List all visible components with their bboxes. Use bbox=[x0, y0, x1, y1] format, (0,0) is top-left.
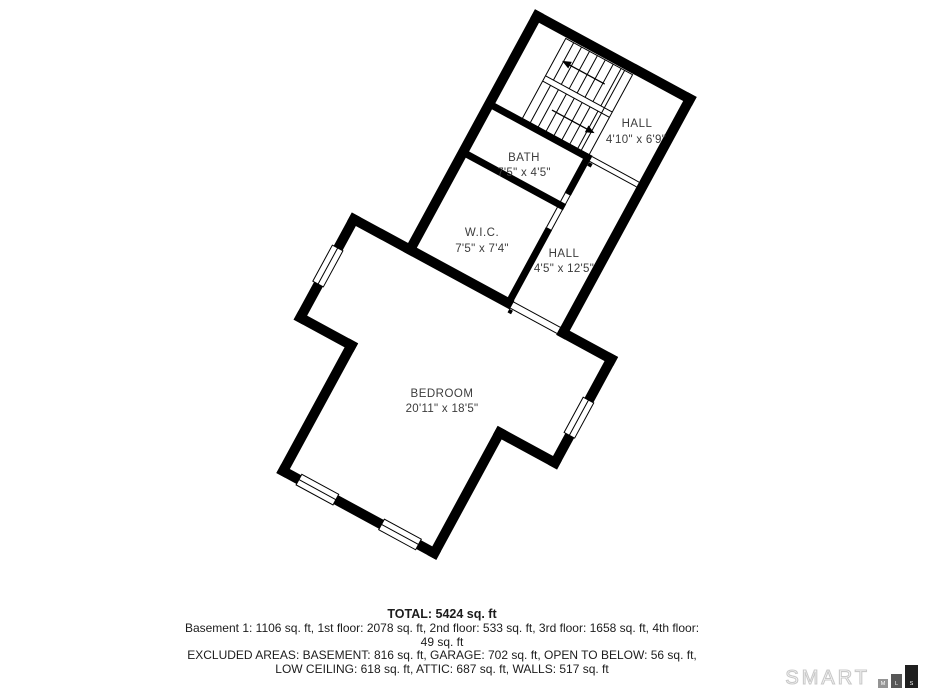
logo-brand-text: SMART bbox=[785, 668, 870, 688]
floor-areas-text: Basement 1: 1106 sq. ft, 1st floor: 2078… bbox=[177, 622, 707, 650]
excluded-areas-text-1: EXCLUDED AREAS: BASEMENT: 816 sq. ft, GA… bbox=[177, 649, 707, 663]
room-label-bath: BATH bbox=[508, 152, 540, 164]
room-dims-bedroom: 20'11" x 18'5" bbox=[406, 403, 479, 415]
logo-block-m: M bbox=[878, 679, 888, 688]
floorplan-page: HALL 4'10" x 6'9" BATH 7'5" x 4'5" W.I.C… bbox=[0, 0, 930, 697]
stair-arrow-down-icon bbox=[585, 126, 597, 137]
wall-left-upper bbox=[403, 9, 543, 256]
wall-corridor-upper bbox=[565, 153, 593, 196]
room-dims-wic: 7'5" x 7'4" bbox=[455, 243, 509, 255]
wall-bedroom-midright bbox=[428, 426, 507, 560]
room-dims-hall-upper: 4'10" x 6'9" bbox=[606, 134, 666, 146]
room-label-hall-corridor: HALL bbox=[549, 248, 580, 260]
floorplan-drawing: HALL 4'10" x 6'9" BATH 7'5" x 4'5" W.I.C… bbox=[0, 0, 930, 697]
floorplan-walls-group bbox=[224, 0, 746, 591]
wall-bedroom-right-a bbox=[585, 352, 619, 402]
opening-corridor-bedroom bbox=[510, 302, 560, 334]
room-dims-hall-corridor: 4'5" x 12'5" bbox=[534, 263, 594, 275]
wall-bedroom-left bbox=[276, 339, 358, 478]
area-summary: TOTAL: 5424 sq. ft Basement 1: 1106 sq. … bbox=[177, 608, 707, 677]
smartmls-logo: SMART M L S bbox=[785, 665, 918, 688]
room-label-hall-upper: HALL bbox=[622, 118, 653, 130]
opening-hall-corridor bbox=[589, 157, 639, 187]
room-dims-bath: 7'5" x 4'5" bbox=[497, 167, 551, 179]
room-label-bedroom: BEDROOM bbox=[411, 388, 474, 400]
logo-mls-blocks: M L S bbox=[875, 665, 918, 688]
logo-block-s: S bbox=[905, 665, 918, 688]
stair-divider-line-1 bbox=[545, 76, 612, 112]
total-area-text: TOTAL: 5424 sq. ft bbox=[177, 608, 707, 622]
wall-wing-left-a bbox=[334, 212, 361, 250]
stair-divider-line-2 bbox=[543, 81, 610, 117]
room-label-wic: W.I.C. bbox=[465, 227, 499, 239]
stair-arrow-up-icon bbox=[560, 58, 572, 69]
windows bbox=[224, 245, 601, 591]
wall-bedroom-bottom-b bbox=[333, 495, 383, 529]
logo-block-l: L bbox=[891, 674, 902, 688]
excluded-areas-text-2: LOW CEILING: 618 sq. ft, ATTIC: 687 sq. … bbox=[177, 663, 707, 677]
